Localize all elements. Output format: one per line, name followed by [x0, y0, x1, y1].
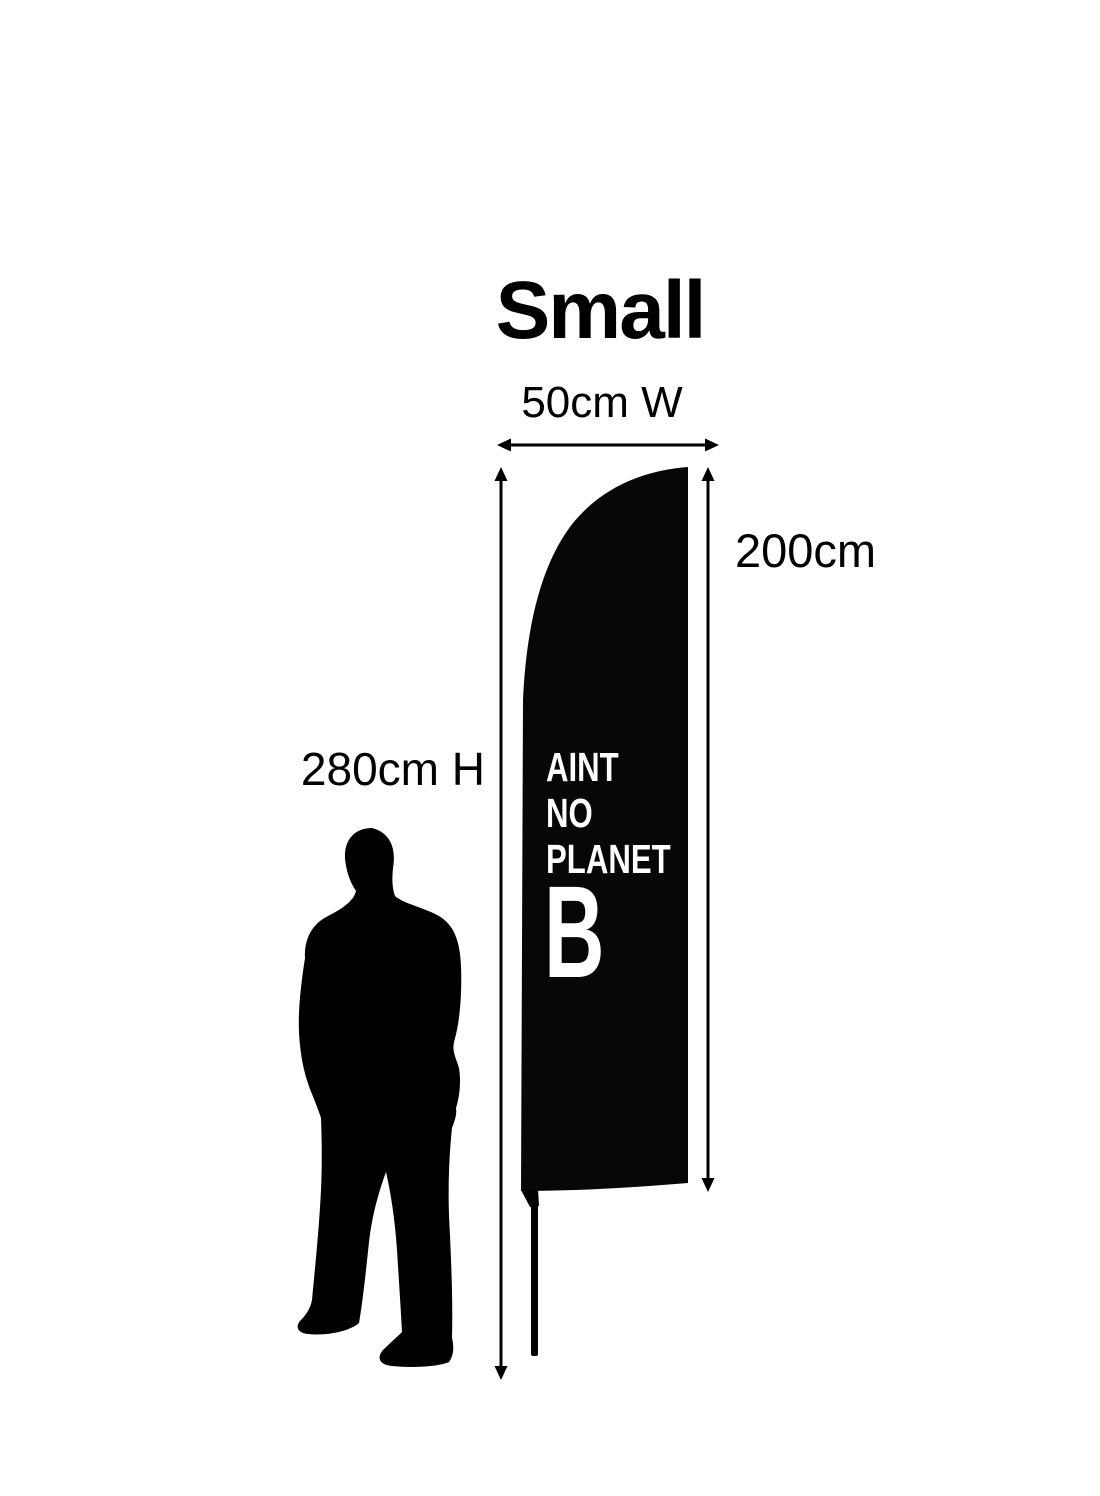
flag-slogan-line-2: NO — [546, 790, 671, 836]
flag-size-diagram: Small 50cm W 200cm 280cm H AINT NO PLANE… — [0, 0, 1100, 1496]
flag-height-arrow — [702, 467, 715, 1192]
total-height-dimension-label: 280cm H — [300, 746, 485, 792]
flag-pole-rod — [531, 1200, 538, 1356]
width-dimension-label: 50cm W — [482, 381, 722, 425]
total-height-arrow — [495, 467, 508, 1380]
flag-pole — [521, 1189, 539, 1356]
person-silhouette — [298, 828, 462, 1367]
width-arrow — [497, 439, 719, 452]
flag-slogan-line-1: AINT — [546, 744, 671, 790]
size-title: Small — [380, 270, 820, 352]
flag-big-letter: B — [544, 866, 605, 997]
flag-height-dimension-label: 200cm — [735, 527, 876, 574]
